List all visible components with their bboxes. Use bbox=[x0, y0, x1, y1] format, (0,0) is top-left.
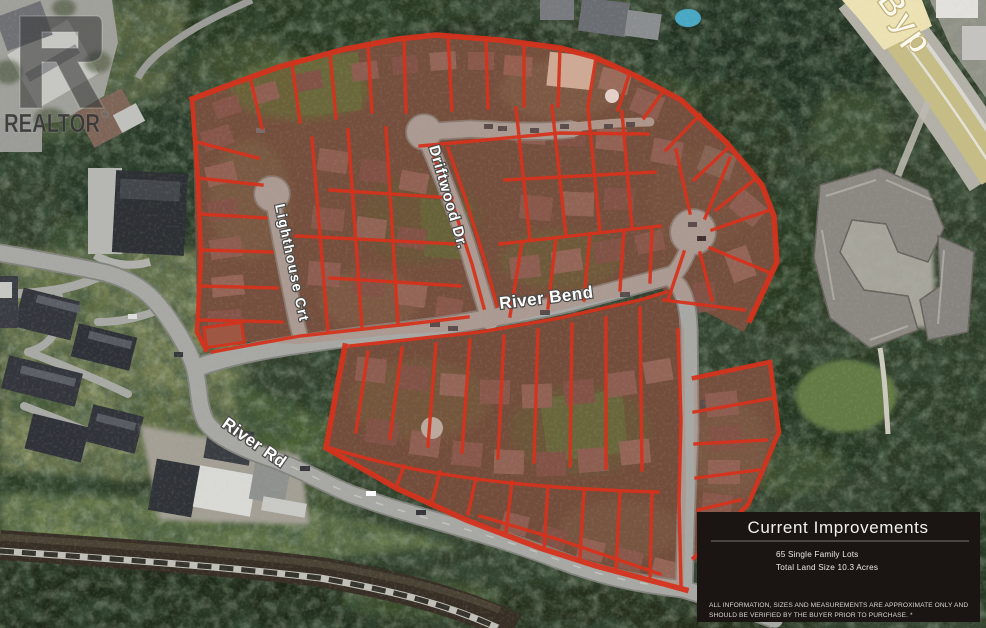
svg-text:65 Single Family Lots: 65 Single Family Lots bbox=[776, 550, 858, 559]
svg-text:SHOULD BE VERIFIED BY THE BUYE: SHOULD BE VERIFIED BY THE BUYER PRIOR TO… bbox=[709, 612, 913, 619]
svg-text:ALL INFORMATION, SIZES AND MEA: ALL INFORMATION, SIZES AND MEASUREMENTS … bbox=[709, 602, 968, 609]
svg-text:Total Land Size 10.3 Acres: Total Land Size 10.3 Acres bbox=[776, 563, 878, 572]
svg-text:REALTOR: REALTOR bbox=[4, 108, 100, 138]
svg-text:®: ® bbox=[101, 109, 109, 121]
svg-text:Current Improvements: Current Improvements bbox=[747, 518, 928, 537]
